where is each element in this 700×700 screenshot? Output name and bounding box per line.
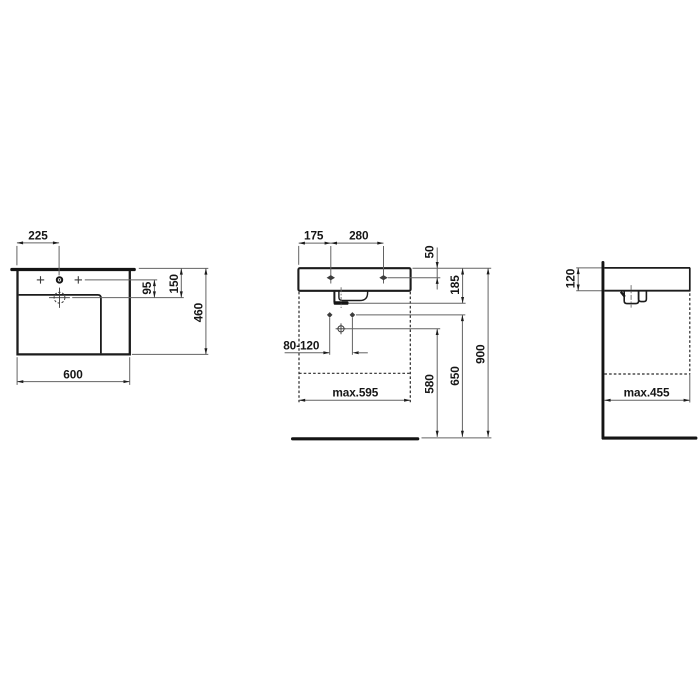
- svg-text:600: 600: [63, 368, 83, 382]
- svg-text:150: 150: [167, 274, 181, 294]
- svg-text:580: 580: [423, 374, 437, 394]
- svg-text:50: 50: [423, 245, 437, 258]
- svg-text:95: 95: [140, 281, 154, 294]
- svg-text:175: 175: [304, 229, 324, 243]
- svg-text:120: 120: [564, 268, 578, 288]
- svg-text:900: 900: [474, 344, 488, 364]
- svg-text:280: 280: [349, 229, 369, 243]
- svg-text:650: 650: [448, 366, 462, 386]
- svg-text:225: 225: [28, 229, 48, 243]
- svg-text:460: 460: [191, 302, 205, 322]
- svg-text:max.595: max.595: [332, 385, 378, 399]
- svg-text:80-120: 80-120: [283, 339, 320, 353]
- svg-text:185: 185: [448, 275, 462, 295]
- svg-text:max.455: max.455: [624, 385, 670, 399]
